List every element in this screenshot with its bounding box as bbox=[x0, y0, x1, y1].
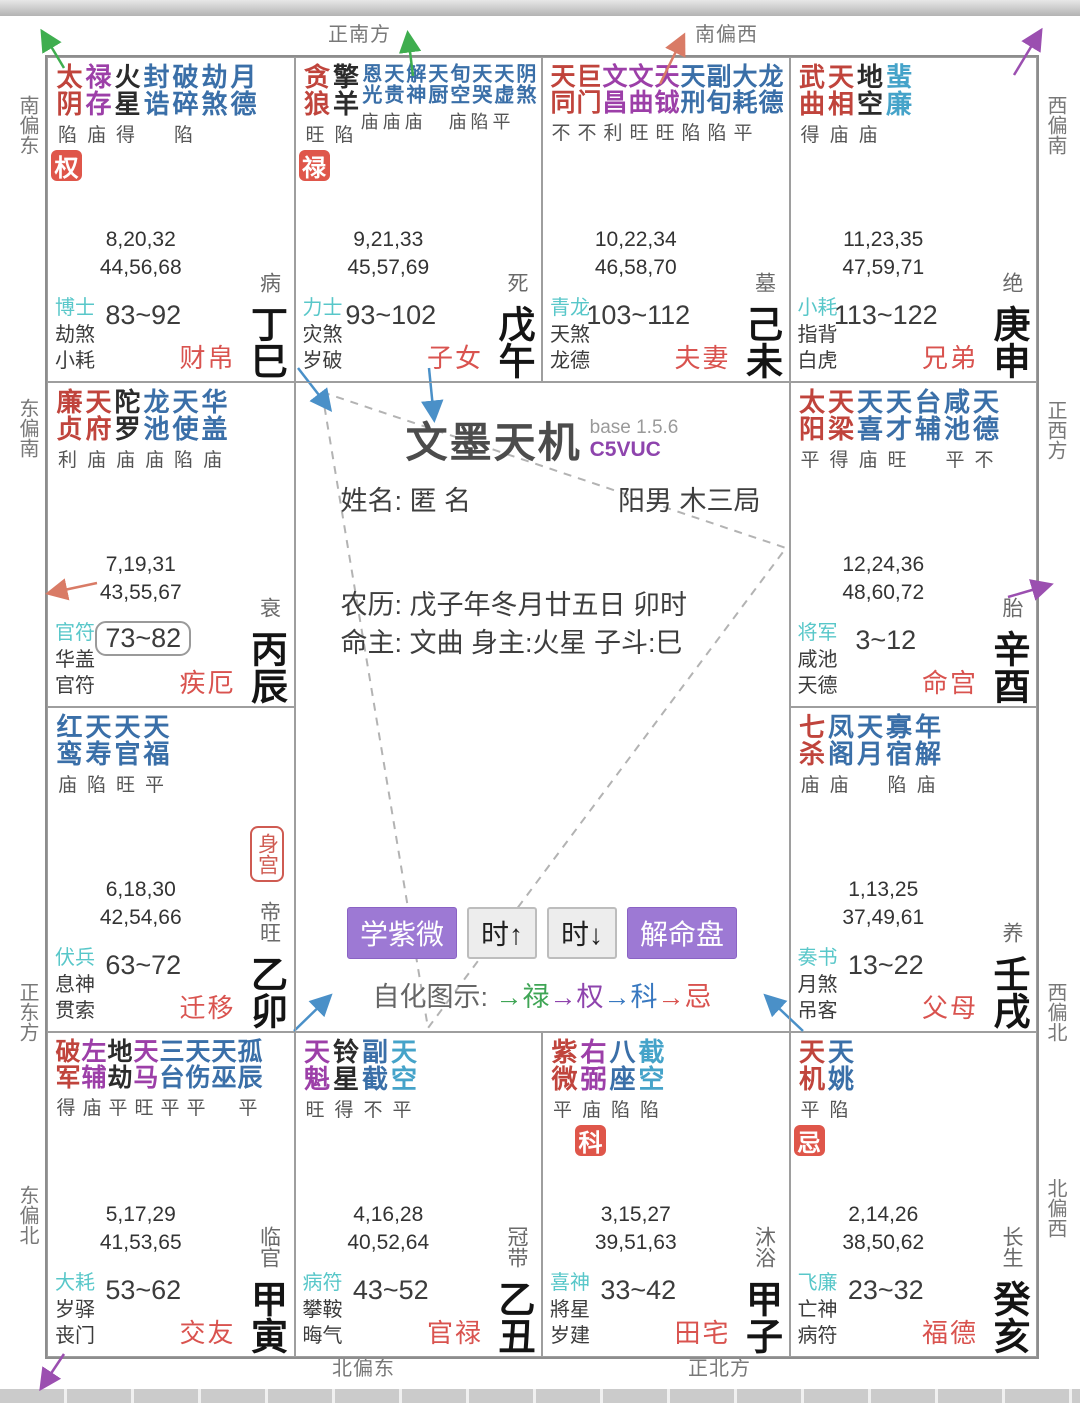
star-brightness: 庙 bbox=[116, 445, 135, 472]
palace-name: 田宅 bbox=[674, 1313, 730, 1350]
palace-life-stage: 冠带 bbox=[504, 1226, 529, 1268]
star-brightness: 不 bbox=[363, 1095, 382, 1122]
palace-xu[interactable]: 七杀庙凤阁庙天月寡宿陷年解庙 1,13,2537,49,61 奏书月煞吊客 13… bbox=[790, 707, 1038, 1032]
star-阴煞: 阴煞 bbox=[513, 63, 535, 129]
star-巨门: 巨门不 bbox=[574, 63, 600, 145]
palace-stem-branch: 丙辰 bbox=[246, 630, 286, 704]
compass-label-south-west: 南偏西 bbox=[695, 18, 758, 47]
star-brightness: 平 bbox=[186, 1093, 205, 1120]
palace-name: 迁移 bbox=[179, 988, 235, 1025]
star-天魁: 天魁旺 bbox=[301, 1038, 330, 1122]
star-三台: 三台平 bbox=[157, 1038, 183, 1120]
palace-decade-range: 43~52 bbox=[345, 1275, 437, 1306]
star-brightness: 利 bbox=[58, 445, 77, 472]
star-brightness: 庙 bbox=[383, 108, 401, 134]
star-brightness: 陷 bbox=[640, 1095, 659, 1122]
palace-decade-range: 113~122 bbox=[826, 300, 946, 331]
palace-zi[interactable]: 紫微平右弼庙八座陷截空陷 3,15,2739,51,63 喜神將星岁建 33~4… bbox=[542, 1032, 790, 1357]
star-brightness: 陷 bbox=[681, 118, 700, 145]
palace-si[interactable]: 太阴陷禄存庙火星得封诰破碎陷劫煞月德 8,20,3244,56,68 博士劫煞小… bbox=[47, 57, 295, 382]
compass-label-south: 正南方 bbox=[328, 18, 391, 47]
palace-life-stage: 胎 bbox=[999, 597, 1024, 618]
palace-name: 兄弟 bbox=[922, 338, 978, 375]
compass-label-east-north: 东偏北 bbox=[14, 1185, 39, 1245]
star-文曲: 文曲旺 bbox=[626, 63, 652, 145]
app-title: 文墨天机 bbox=[406, 409, 582, 470]
legend-ke: →科 bbox=[604, 982, 658, 1012]
sihua-badge-忌: 忌 bbox=[794, 1125, 825, 1156]
palace-decade-range: 63~72 bbox=[97, 950, 189, 981]
star-brightness: 陷 bbox=[829, 1095, 848, 1122]
star-brightness: 平 bbox=[800, 445, 819, 472]
palace-life-stage: 墓 bbox=[751, 272, 776, 293]
star-天虚: 天虚平 bbox=[491, 63, 513, 134]
star-brightness: 旺 bbox=[629, 118, 648, 145]
palace-life-stage: 病 bbox=[256, 272, 281, 293]
star-武曲: 武曲得 bbox=[796, 63, 825, 147]
palace-year-numbers: 11,23,3547,59,71 bbox=[791, 226, 977, 281]
star-禄存: 禄存庙 bbox=[82, 63, 111, 147]
star-孤辰: 孤辰平 bbox=[235, 1038, 261, 1120]
palace-stem-branch: 辛酉 bbox=[988, 630, 1028, 704]
palace-stars: 太阳平天梁得天喜庙天才旺台辅咸池平天德不 bbox=[796, 388, 999, 472]
star-brightness: 旺 bbox=[116, 770, 135, 797]
palace-name: 财帛 bbox=[179, 338, 235, 375]
star-解神: 解神庙 bbox=[403, 63, 425, 134]
palace-name: 福德 bbox=[922, 1313, 978, 1350]
star-红鸾: 红鸾庙 bbox=[53, 713, 82, 797]
compass-label-south-east: 南偏东 bbox=[14, 95, 39, 155]
palace-yin[interactable]: 破军得左辅庙地劫平天马旺三台平天伤平天巫孤辰平 5,17,2941,53,65 … bbox=[47, 1032, 295, 1357]
star-brightness: 旺 bbox=[305, 120, 324, 147]
star-月德: 月德 bbox=[227, 63, 256, 141]
star-brightness: 平 bbox=[945, 445, 964, 472]
palace-name: 官禄 bbox=[427, 1313, 483, 1350]
star-brightness: 庙 bbox=[829, 120, 848, 147]
star-七杀: 七杀庙 bbox=[796, 713, 825, 797]
palace-stem-branch: 乙丑 bbox=[493, 1280, 533, 1354]
bottom-chrome-bar bbox=[0, 1389, 1080, 1403]
star-天贵: 天贵庙 bbox=[381, 63, 403, 134]
palace-stars: 贪狼旺擎羊陷恩光庙天贵庙解神庙天厨旬空庙天哭陷天虚平阴煞 bbox=[301, 63, 535, 147]
star-八座: 八座陷 bbox=[606, 1038, 635, 1122]
star-华盖: 华盖庙 bbox=[198, 388, 227, 472]
star-brightness: 庙 bbox=[87, 120, 106, 147]
palace-year-numbers: 4,16,2840,52,64 bbox=[296, 1201, 482, 1256]
star-铃星: 铃星得 bbox=[330, 1038, 359, 1122]
star-天机: 天机平 bbox=[796, 1038, 825, 1122]
star-brightness: 陷 bbox=[471, 108, 489, 134]
star-副截: 副截不 bbox=[359, 1038, 388, 1122]
palace-name: 子女 bbox=[427, 338, 483, 375]
sihua-legend-label: 自化图示: bbox=[372, 982, 488, 1012]
star-brightness: 陷 bbox=[58, 120, 77, 147]
star-地劫: 地劫平 bbox=[105, 1038, 131, 1120]
star-brightness: 不 bbox=[551, 118, 570, 145]
star-旬空: 旬空庙 bbox=[447, 63, 469, 134]
hour-up-button[interactable]: 时↑ bbox=[467, 907, 537, 959]
top-chrome-bar bbox=[0, 0, 1080, 16]
star-天伤: 天伤平 bbox=[183, 1038, 209, 1120]
star-破军: 破军得 bbox=[53, 1038, 79, 1120]
palace-stars: 天同不巨门不文昌利文曲旺天钺旺天刑陷副旬陷大耗平龙德 bbox=[548, 63, 782, 145]
star-文昌: 文昌利 bbox=[600, 63, 626, 145]
star-天厨: 天厨 bbox=[425, 63, 447, 129]
star-brightness: 庙 bbox=[829, 770, 848, 797]
palace-life-stage: 临官 bbox=[256, 1226, 281, 1268]
star-年解: 年解庙 bbox=[912, 713, 941, 797]
palace-name: 父母 bbox=[922, 988, 978, 1025]
star-天寿: 天寿陷 bbox=[82, 713, 111, 797]
toolbar: 学紫微 时↑ 时↓ 解命盘 bbox=[296, 907, 789, 959]
star-brightness: 陷 bbox=[887, 770, 906, 797]
palace-chou[interactable]: 天魁旺铃星得副截不天空平 4,16,2840,52,64 病符攀鞍晦气 43~5… bbox=[295, 1032, 543, 1357]
star-brightness: 平 bbox=[553, 1095, 572, 1122]
palace-you[interactable]: 太阳平天梁得天喜庙天才旺台辅咸池平天德不 12,24,3648,60,72 将军… bbox=[790, 382, 1038, 707]
star-太阴: 太阴陷 bbox=[53, 63, 82, 147]
palace-stars: 紫微平右弼庙八座陷截空陷 bbox=[548, 1038, 664, 1122]
star-天相: 天相庙 bbox=[825, 63, 854, 147]
palace-hai[interactable]: 天机平天姚陷 2,14,2638,50,62 飞廉亡神病符 23~32 长生 福… bbox=[790, 1032, 1038, 1357]
star-brightness: 庙 bbox=[203, 445, 222, 472]
star-天梁: 天梁得 bbox=[825, 388, 854, 472]
star-brightness: 庙 bbox=[58, 770, 77, 797]
star-廉贞: 廉贞利 bbox=[53, 388, 82, 472]
palace-stars: 天魁旺铃星得副截不天空平 bbox=[301, 1038, 417, 1122]
palace-stars: 破军得左辅庙地劫平天马旺三台平天伤平天巫孤辰平 bbox=[53, 1038, 261, 1120]
person-gender-bureau: 阳男 木三局 bbox=[618, 479, 761, 518]
palace-life-stage: 养 bbox=[999, 922, 1024, 943]
star-brightness: 陷 bbox=[334, 120, 353, 147]
sihua-legend: 自化图示: →禄→权→科→忌 bbox=[296, 975, 789, 1014]
palace-decade-range: 33~42 bbox=[592, 1275, 684, 1306]
palace-decade-range: 23~32 bbox=[840, 1275, 932, 1306]
palace-decade-range: 83~92 bbox=[97, 300, 189, 331]
star-brightness: 不 bbox=[577, 118, 596, 145]
palace-stars: 红鸾庙天寿陷天官旺天福平 bbox=[53, 713, 169, 797]
palace-year-numbers: 5,17,2941,53,65 bbox=[48, 1201, 234, 1256]
star-brightness: 旺 bbox=[887, 445, 906, 472]
palace-stem-branch: 庚申 bbox=[988, 305, 1028, 379]
star-天巫: 天巫 bbox=[209, 1038, 235, 1114]
star-咸池: 咸池平 bbox=[941, 388, 970, 472]
palace-stars: 太阴陷禄存庙火星得封诰破碎陷劫煞月德 bbox=[53, 63, 256, 147]
legend-ji: →忌 bbox=[658, 982, 712, 1012]
star-brightness: 庙 bbox=[449, 108, 467, 134]
star-左辅: 左辅庙 bbox=[79, 1038, 105, 1120]
star-地空: 地空庙 bbox=[854, 63, 883, 147]
palace-shen[interactable]: 武曲得天相庙地空庙蜚廉 11,23,3547,59,71 小耗指背白虎 113~… bbox=[790, 57, 1038, 382]
hour-down-button[interactable]: 时↓ bbox=[547, 907, 617, 959]
star-brightness: 旺 bbox=[305, 1095, 324, 1122]
star-brightness: 平 bbox=[800, 1095, 819, 1122]
palace-year-numbers: 3,15,2739,51,63 bbox=[543, 1201, 729, 1256]
star-brightness: 得 bbox=[800, 120, 819, 147]
star-brightness: 陷 bbox=[611, 1095, 630, 1122]
star-brightness: 庙 bbox=[87, 445, 106, 472]
star-brightness: 陷 bbox=[87, 770, 106, 797]
star-brightness: 陷 bbox=[174, 445, 193, 472]
palace-stem-branch: 癸亥 bbox=[988, 1280, 1028, 1354]
star-紫微: 紫微平 bbox=[548, 1038, 577, 1122]
star-brightness: 平 bbox=[733, 118, 752, 145]
palace-stem-branch: 己未 bbox=[741, 305, 781, 379]
star-大耗: 大耗平 bbox=[730, 63, 756, 145]
palace-year-numbers: 10,22,3446,58,70 bbox=[543, 226, 729, 281]
star-擎羊: 擎羊陷 bbox=[330, 63, 359, 147]
star-brightness: 旺 bbox=[134, 1093, 153, 1120]
star-brightness: 庙 bbox=[361, 108, 379, 134]
star-台辅: 台辅 bbox=[912, 388, 941, 466]
star-凤阁: 凤阁庙 bbox=[825, 713, 854, 797]
star-天月: 天月 bbox=[854, 713, 883, 791]
palace-life-stage: 死 bbox=[504, 272, 529, 293]
star-brightness: 庙 bbox=[858, 445, 877, 472]
compass-label-west-south: 西偏南 bbox=[1042, 95, 1067, 155]
star-天空: 天空平 bbox=[388, 1038, 417, 1122]
palace-name: 疾厄 bbox=[179, 663, 235, 700]
palace-life-stage: 帝旺 bbox=[256, 901, 281, 943]
star-火星: 火星得 bbox=[111, 63, 140, 147]
compass-label-north-west: 北偏西 bbox=[1042, 1178, 1067, 1238]
star-brightness: 旺 bbox=[655, 118, 674, 145]
chart-center-panel: 文墨天机 base 1.5.6 C5VUC 姓名: 匿 名 阳男 木三局 农历:… bbox=[295, 382, 790, 1032]
star-天府: 天府庙 bbox=[82, 388, 111, 472]
palace-year-numbers: 6,18,3042,54,66 bbox=[48, 876, 234, 931]
compass-label-east: 正东方 bbox=[14, 982, 39, 1042]
palace-year-numbers: 7,19,3143,55,67 bbox=[48, 551, 234, 606]
star-brightness: 得 bbox=[56, 1093, 75, 1120]
star-天钺: 天钺旺 bbox=[652, 63, 678, 145]
star-劫煞: 劫煞 bbox=[198, 63, 227, 141]
star-brightness: 平 bbox=[145, 770, 164, 797]
sihua-badge-禄: 禄 bbox=[299, 150, 330, 181]
palace-stem-branch: 甲寅 bbox=[246, 1280, 286, 1354]
star-龙池: 龙池庙 bbox=[140, 388, 169, 472]
star-太阳: 太阳平 bbox=[796, 388, 825, 472]
sihua-badge-科: 科 bbox=[575, 1125, 606, 1156]
legend-lu: →禄 bbox=[496, 982, 550, 1012]
palace-year-numbers: 9,21,3345,57,69 bbox=[296, 226, 482, 281]
palace-decade-range: 73~82 bbox=[95, 621, 191, 656]
palace-stem-branch: 丁巳 bbox=[246, 305, 286, 379]
star-恩光: 恩光庙 bbox=[359, 63, 381, 134]
palace-stars: 天机平天姚陷 bbox=[796, 1038, 854, 1122]
app-version: base 1.5.6 bbox=[590, 417, 679, 438]
astrology-chart-grid: 文墨天机 base 1.5.6 C5VUC 姓名: 匿 名 阳男 木三局 农历:… bbox=[45, 55, 1039, 1359]
masters-line: 命主: 文曲 身主:火星 子斗:巳 bbox=[341, 621, 683, 660]
star-天哭: 天哭陷 bbox=[469, 63, 491, 134]
palace-year-numbers: 12,24,3648,60,72 bbox=[791, 551, 977, 606]
palace-stars: 廉贞利天府庙陀罗庙龙池庙天使陷华盖庙 bbox=[53, 388, 227, 472]
star-天德: 天德不 bbox=[970, 388, 999, 472]
palace-decade-range: 3~12 bbox=[847, 625, 924, 656]
star-brightness: 不 bbox=[974, 445, 993, 472]
star-封诰: 封诰 bbox=[140, 63, 169, 141]
palace-year-numbers: 1,13,2537,49,61 bbox=[791, 876, 977, 931]
star-天喜: 天喜庙 bbox=[854, 388, 883, 472]
star-陀罗: 陀罗庙 bbox=[111, 388, 140, 472]
palace-mao[interactable]: 红鸾庙天寿陷天官旺天福平 6,18,3042,54,66 伏兵息神贯索 63~7… bbox=[47, 707, 295, 1032]
star-brightness: 平 bbox=[392, 1095, 411, 1122]
lunar-birth-line: 农历: 戊子年冬月廿五日 卯时 bbox=[341, 583, 688, 622]
palace-stem-branch: 戊午 bbox=[493, 305, 533, 379]
star-brightness: 庙 bbox=[82, 1093, 101, 1120]
interpret-chart-button[interactable]: 解命盘 bbox=[627, 907, 737, 959]
star-天官: 天官旺 bbox=[111, 713, 140, 797]
app-code: C5VUC bbox=[590, 438, 679, 462]
star-brightness: 陷 bbox=[707, 118, 726, 145]
palace-name: 命宫 bbox=[922, 663, 978, 700]
shen-gong-badge: 身宫 bbox=[250, 826, 283, 882]
palace-chen[interactable]: 廉贞利天府庙陀罗庙龙池庙天使陷华盖庙 7,19,3143,55,67 官符华盖官… bbox=[47, 382, 295, 707]
star-brightness: 平 bbox=[160, 1093, 179, 1120]
person-name: 姓名: 匿 名 bbox=[341, 479, 472, 518]
star-右弼: 右弼庙 bbox=[577, 1038, 606, 1122]
palace-life-stage: 衰 bbox=[256, 597, 281, 618]
palace-year-numbers: 8,20,3244,56,68 bbox=[48, 226, 234, 281]
star-brightness: 庙 bbox=[405, 108, 423, 134]
palace-decade-range: 13~22 bbox=[840, 950, 932, 981]
star-brightness: 庙 bbox=[858, 120, 877, 147]
compass-label-west-north: 西偏北 bbox=[1042, 982, 1067, 1042]
star-天使: 天使陷 bbox=[169, 388, 198, 472]
star-截空: 截空陷 bbox=[635, 1038, 664, 1122]
star-brightness: 得 bbox=[334, 1095, 353, 1122]
star-brightness: 得 bbox=[829, 445, 848, 472]
learn-ziwei-button[interactable]: 学紫微 bbox=[347, 907, 457, 959]
star-天才: 天才旺 bbox=[883, 388, 912, 472]
sihua-badge-权: 权 bbox=[51, 150, 82, 181]
legend-quan: →权 bbox=[550, 982, 604, 1012]
star-破碎: 破碎陷 bbox=[169, 63, 198, 147]
star-天马: 天马旺 bbox=[131, 1038, 157, 1120]
palace-year-numbers: 2,14,2638,50,62 bbox=[791, 1201, 977, 1256]
star-副旬: 副旬陷 bbox=[704, 63, 730, 145]
palace-decade-range: 93~102 bbox=[337, 300, 444, 331]
palace-life-stage: 绝 bbox=[999, 272, 1024, 293]
compass-label-west: 正西方 bbox=[1042, 400, 1067, 460]
star-brightness: 庙 bbox=[145, 445, 164, 472]
star-brightness: 庙 bbox=[916, 770, 935, 797]
star-brightness: 庙 bbox=[800, 770, 819, 797]
palace-name: 交友 bbox=[179, 1313, 235, 1350]
palace-stem-branch: 壬戌 bbox=[988, 955, 1028, 1029]
star-天姚: 天姚陷 bbox=[825, 1038, 854, 1122]
star-brightness: 得 bbox=[116, 120, 135, 147]
star-brightness: 平 bbox=[238, 1093, 257, 1120]
palace-decade-range: 53~62 bbox=[97, 1275, 189, 1306]
star-brightness: 平 bbox=[493, 108, 511, 134]
star-天同: 天同不 bbox=[548, 63, 574, 145]
star-天刑: 天刑陷 bbox=[678, 63, 704, 145]
star-brightness: 陷 bbox=[174, 120, 193, 147]
star-brightness: 庙 bbox=[582, 1095, 601, 1122]
palace-decade-range: 103~112 bbox=[578, 300, 698, 331]
star-蜚廉: 蜚廉 bbox=[883, 63, 912, 141]
palace-stars: 七杀庙凤阁庙天月寡宿陷年解庙 bbox=[796, 713, 941, 797]
palace-stem-branch: 乙卯 bbox=[246, 955, 286, 1029]
palace-stars: 武曲得天相庙地空庙蜚廉 bbox=[796, 63, 912, 147]
palace-wei[interactable]: 天同不巨门不文昌利文曲旺天钺旺天刑陷副旬陷大耗平龙德 10,22,3446,58… bbox=[542, 57, 790, 382]
palace-life-stage: 沐浴 bbox=[751, 1226, 776, 1268]
star-寡宿: 寡宿陷 bbox=[883, 713, 912, 797]
palace-name: 夫妻 bbox=[674, 338, 730, 375]
palace-wu[interactable]: 贪狼旺擎羊陷恩光庙天贵庙解神庙天厨旬空庙天哭陷天虚平阴煞 9,21,3345,5… bbox=[295, 57, 543, 382]
compass-label-east-south: 东偏南 bbox=[14, 398, 39, 458]
palace-stem-branch: 甲子 bbox=[741, 1280, 781, 1354]
star-贪狼: 贪狼旺 bbox=[301, 63, 330, 147]
star-brightness: 平 bbox=[108, 1093, 127, 1120]
star-龙德: 龙德 bbox=[756, 63, 782, 139]
palace-life-stage: 长生 bbox=[999, 1226, 1024, 1268]
star-brightness: 利 bbox=[603, 118, 622, 145]
star-天福: 天福平 bbox=[140, 713, 169, 797]
